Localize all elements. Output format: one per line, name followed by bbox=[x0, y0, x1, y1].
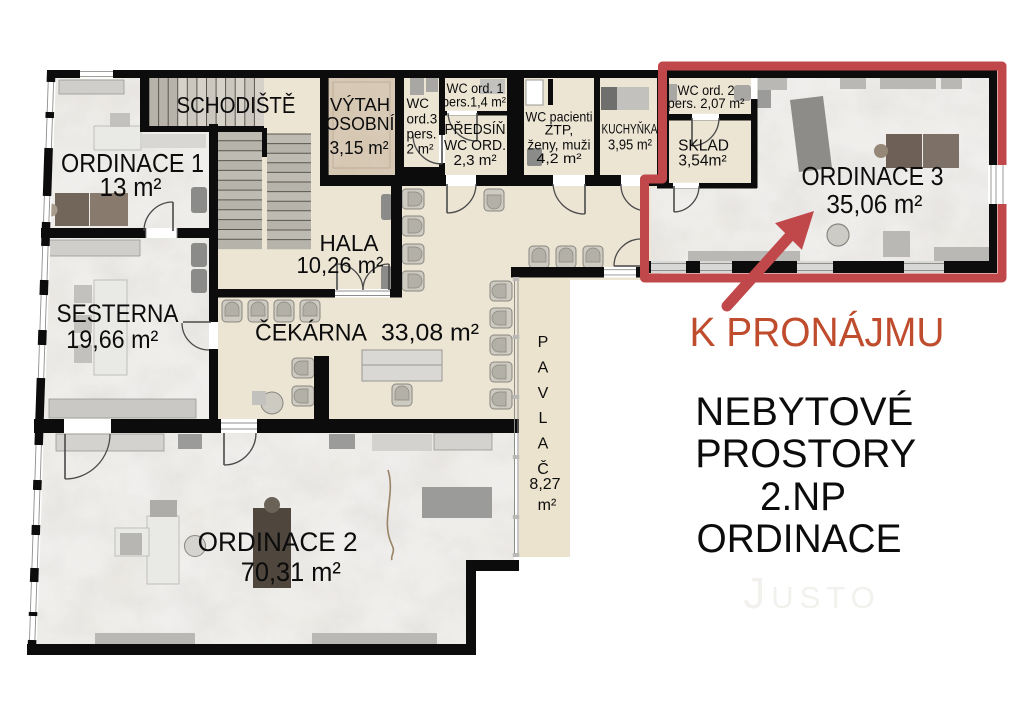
svg-text:3,95 m²: 3,95 m² bbox=[608, 137, 652, 154]
svg-text:ord.3: ord.3 bbox=[407, 112, 438, 127]
svg-text:PŘEDSÍŇ: PŘEDSÍŇ bbox=[445, 121, 506, 138]
svg-text:m²: m² bbox=[538, 497, 557, 514]
svg-text:KUCHYŇKA: KUCHYŇKA bbox=[602, 122, 658, 137]
svg-text:13 m²: 13 m² bbox=[100, 174, 162, 202]
svg-text:L: L bbox=[539, 410, 548, 427]
svg-text:8,27: 8,27 bbox=[529, 476, 560, 493]
svg-text:PROSTORY: PROSTORY bbox=[695, 432, 916, 476]
svg-text:Justo: Justo bbox=[743, 569, 881, 618]
svg-text:2,3 m²: 2,3 m² bbox=[454, 152, 497, 169]
svg-text:K PRONÁJMU: K PRONÁJMU bbox=[690, 309, 945, 355]
svg-text:SCHODIŠTĚ: SCHODIŠTĚ bbox=[177, 91, 296, 118]
svg-text:pers.: pers. bbox=[407, 127, 437, 142]
svg-text:pers. 2,07 m²: pers. 2,07 m² bbox=[668, 96, 745, 111]
svg-text:WC: WC bbox=[407, 96, 430, 111]
svg-text:VÝTAH: VÝTAH bbox=[330, 94, 390, 115]
svg-text:2.NP: 2.NP bbox=[760, 475, 846, 519]
svg-text:NEBYTOVÉ: NEBYTOVÉ bbox=[695, 389, 913, 434]
svg-text:SESTERNA: SESTERNA bbox=[57, 300, 179, 328]
svg-text:33,08 m²: 33,08 m² bbox=[381, 320, 479, 347]
svg-text:35,06 m²: 35,06 m² bbox=[826, 191, 922, 219]
svg-text:ZTP,: ZTP, bbox=[545, 122, 574, 138]
svg-text:V: V bbox=[538, 385, 549, 402]
svg-text:ČEKÁRNA: ČEKÁRNA bbox=[255, 319, 368, 347]
svg-text:10,26 m²: 10,26 m² bbox=[297, 252, 384, 278]
svg-text:ORDINACE 2: ORDINACE 2 bbox=[198, 527, 358, 557]
svg-text:19,66 m²: 19,66 m² bbox=[66, 326, 158, 354]
svg-text:70,31 m²: 70,31 m² bbox=[241, 557, 341, 587]
svg-text:P: P bbox=[538, 334, 549, 351]
svg-text:ORDINACE 3: ORDINACE 3 bbox=[802, 163, 944, 191]
svg-text:2 m²: 2 m² bbox=[407, 142, 435, 157]
svg-text:OSOBNÍ: OSOBNÍ bbox=[326, 113, 396, 134]
svg-text:3,15 m²: 3,15 m² bbox=[330, 137, 389, 158]
svg-text:4,2 m²: 4,2 m² bbox=[537, 150, 582, 166]
svg-text:A: A bbox=[538, 436, 549, 453]
svg-text:3,54m²: 3,54m² bbox=[678, 153, 726, 170]
svg-text:pers.1,4 m²: pers.1,4 m² bbox=[442, 95, 506, 110]
svg-text:A: A bbox=[538, 359, 549, 376]
svg-text:ORDINACE: ORDINACE bbox=[697, 517, 902, 561]
